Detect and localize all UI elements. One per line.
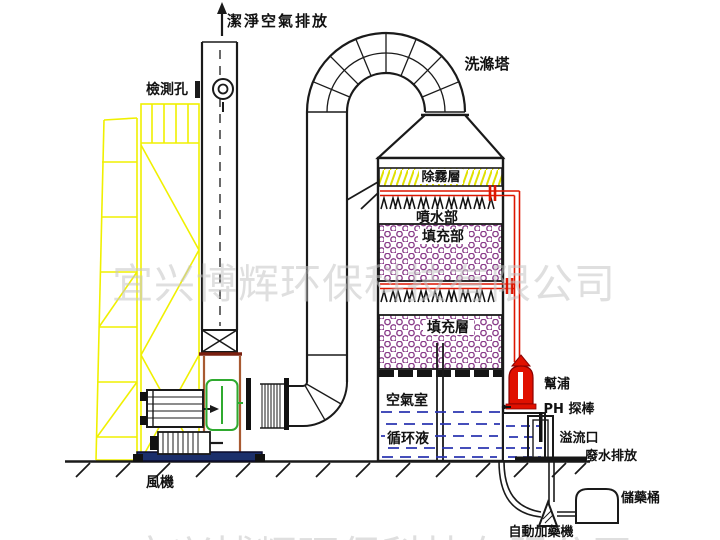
- label-packing-section: 填充部: [422, 228, 464, 245]
- clean-air-arrow-icon: [217, 2, 227, 36]
- exhaust-stack: [195, 2, 242, 455]
- label-clean-air-outlet: 潔淨空氣排放: [227, 12, 329, 30]
- label-packing-layer: 填充層: [427, 319, 469, 336]
- fan-unit: [133, 380, 265, 462]
- label-ph-probe: PH 探棒: [544, 401, 596, 417]
- label-wastewater-discharge: 廢水排放: [585, 448, 638, 464]
- label-inspection-port: 檢測孔: [146, 81, 188, 98]
- label-spray-section: 噴水部: [416, 209, 458, 226]
- label-auto-dosing-machine: 自動加藥機: [508, 524, 573, 540]
- label-demister-layer: 除霧層: [421, 169, 460, 185]
- pump: [502, 355, 536, 413]
- flex-connector: [262, 384, 280, 428]
- label-scrubber-tower: 洗滌塔: [464, 55, 510, 73]
- label-pump: 幫浦: [544, 376, 570, 392]
- label-fan: 風機: [146, 474, 174, 491]
- label-overflow-port: 溢流口: [559, 430, 598, 446]
- scrubber-system-drawing: 潔淨空氣排放 檢測孔 洗滌塔 除霧層 噴水部 填充部 填充層 空氣室 循环液 風…: [0, 0, 720, 540]
- ground: [65, 462, 590, 478]
- label-circulating-liquid: 循环液: [387, 430, 430, 447]
- elbow-gores: [313, 33, 459, 97]
- chemical-tank-shape: [576, 489, 618, 523]
- fan-housing: [207, 380, 244, 430]
- inspection-port: [195, 79, 233, 112]
- diagram-canvas: 潔淨空氣排放 檢測孔 洗滌塔 除霧層 噴水部 填充部 填充層 空氣室 循环液 風…: [0, 0, 720, 540]
- label-chemical-tank: 儲藥桶: [620, 490, 660, 506]
- label-air-chamber: 空氣室: [386, 392, 428, 409]
